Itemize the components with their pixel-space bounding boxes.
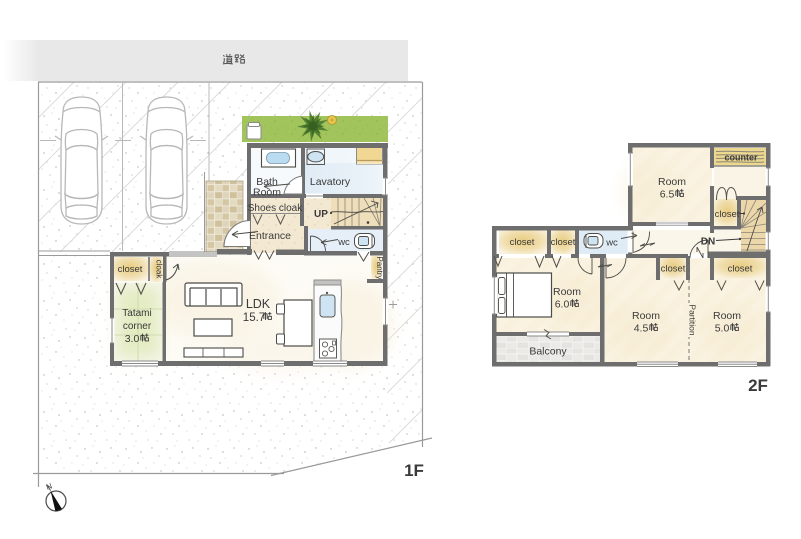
svg-text:counter: counter bbox=[724, 153, 758, 163]
svg-text:Room: Room bbox=[253, 187, 281, 199]
svg-text:6.5: 6.5 bbox=[660, 189, 675, 201]
svg-text:Partition: Partition bbox=[688, 304, 698, 335]
svg-text:3.0: 3.0 bbox=[125, 333, 140, 345]
svg-text:wc: wc bbox=[337, 237, 350, 248]
svg-text:Room: Room bbox=[553, 286, 581, 298]
svg-text:Room: Room bbox=[713, 310, 741, 322]
svg-text:Room: Room bbox=[632, 310, 660, 322]
svg-text:6.0: 6.0 bbox=[555, 299, 570, 311]
svg-text:Pantry: Pantry bbox=[375, 256, 384, 279]
svg-text:Balcony: Balcony bbox=[529, 346, 567, 358]
svg-text:closet: closet bbox=[715, 209, 740, 220]
svg-text:1F: 1F bbox=[404, 461, 424, 480]
svg-text:LDK: LDK bbox=[246, 297, 271, 311]
svg-text:UP: UP bbox=[314, 209, 328, 220]
svg-text:closet: closet bbox=[118, 264, 143, 275]
svg-text:5.0: 5.0 bbox=[715, 323, 730, 335]
svg-text:15.7: 15.7 bbox=[243, 312, 265, 324]
svg-text:wc: wc bbox=[605, 238, 618, 249]
svg-text:2F: 2F bbox=[748, 376, 768, 395]
svg-text:closet: closet bbox=[551, 237, 576, 248]
svg-text:Lavatory: Lavatory bbox=[310, 176, 351, 188]
svg-text:closet: closet bbox=[728, 264, 753, 275]
svg-text:corner: corner bbox=[123, 321, 152, 332]
svg-text:Room: Room bbox=[658, 176, 686, 188]
svg-text:4.5: 4.5 bbox=[634, 323, 649, 335]
svg-text:DN: DN bbox=[701, 237, 715, 248]
svg-text:closet: closet bbox=[661, 264, 686, 275]
svg-text:cloak: cloak bbox=[155, 260, 164, 280]
svg-text:Tatami: Tatami bbox=[122, 308, 151, 319]
svg-text:Entrance: Entrance bbox=[249, 230, 291, 242]
svg-text:Shoes cloak: Shoes cloak bbox=[248, 203, 303, 214]
svg-text:closet: closet bbox=[510, 237, 535, 248]
